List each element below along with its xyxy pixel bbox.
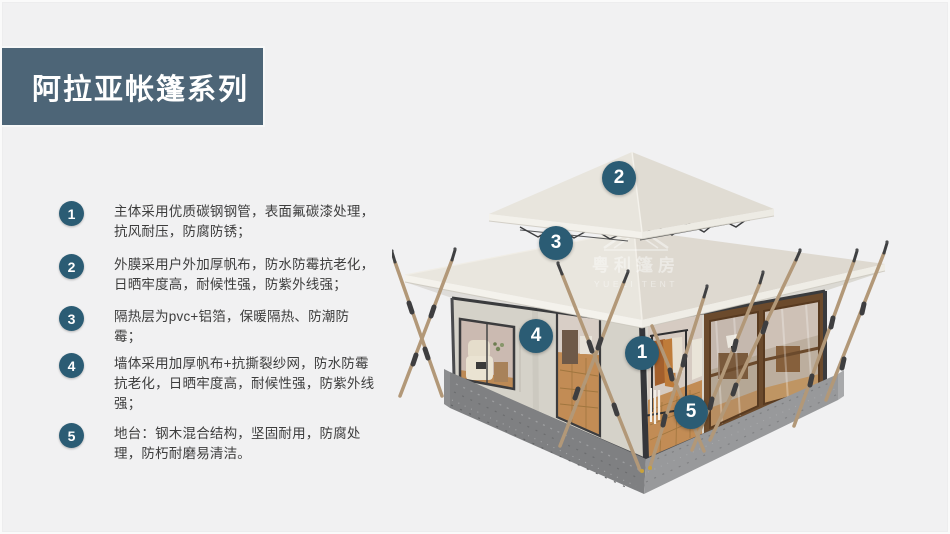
page-title: 阿拉亚帐篷系列 [32,66,249,108]
tent-callout-5: 5 [674,395,708,429]
tent-illustration: 粤利篷房 YUELI TENT [392,140,950,534]
slide-canvas: 阿拉亚帐篷系列 1 主体采用优质碳钢钢管，表面氟碳漆处理，抗风耐压，防腐防锈； … [0,0,950,534]
title-banner: 阿拉亚帐篷系列 [2,46,265,127]
bed [692,338,702,380]
feature-text: 外膜采用户外加厚帆布，防水防霉抗老化，日晒牢度高，耐候性强，防紫外线强； [114,255,376,295]
feature-item-1: 1 主体采用优质碳钢钢管，表面氟碳漆处理，抗风耐压，防腐防锈； [59,201,376,242]
feature-number-badge: 5 [59,423,84,448]
tent-callout-3: 3 [539,226,573,260]
watermark-cn: 粤利篷房 [592,255,680,275]
feature-item-2: 2 外膜采用户外加厚帆布，防水防霉抗老化，日晒牢度高，耐候性强，防紫外线强； [59,254,376,295]
feature-item-3: 3 隔热层为pvc+铝箔，保暖隔热、防潮防霉； [59,306,376,347]
feature-number-badge: 4 [59,353,84,378]
feature-number-badge: 1 [59,201,84,226]
feature-item-4: 4 墙体采用加厚帆布+抗撕裂纱网，防水防霉抗老化，日晒牢度高，耐候性强，防紫外线… [59,353,376,414]
feature-text: 墙体采用加厚帆布+抗撕裂纱网，防水防霉抗老化，日晒牢度高，耐候性强，防紫外线强； [114,354,376,414]
watermark-en: YUELI TENT [594,279,678,289]
feature-number-badge: 2 [59,254,84,279]
feature-number-badge: 3 [59,306,84,331]
upper-roof [489,152,774,239]
tent-callout-2: 2 [602,161,636,195]
tent-callout-4: 4 [519,319,553,353]
feature-text: 隔热层为pvc+铝箔，保暖隔热、防潮防霉； [114,307,376,347]
left-wall-door [557,312,600,436]
feature-text: 地台：钢木混合结构，坚固耐用，防腐处理，防朽耐磨易清洁。 [114,424,376,464]
feature-text: 主体采用优质碳钢钢管，表面氟碳漆处理，抗风耐压，防腐防锈； [114,202,376,242]
tent-callout-1: 1 [625,336,659,370]
feature-item-5: 5 地台：钢木混合结构，坚固耐用，防腐处理，防朽耐磨易清洁。 [59,423,376,464]
tent-illustration-container: 粤利篷房 YUELI TENT [392,140,950,534]
left-wall-window [460,319,514,389]
